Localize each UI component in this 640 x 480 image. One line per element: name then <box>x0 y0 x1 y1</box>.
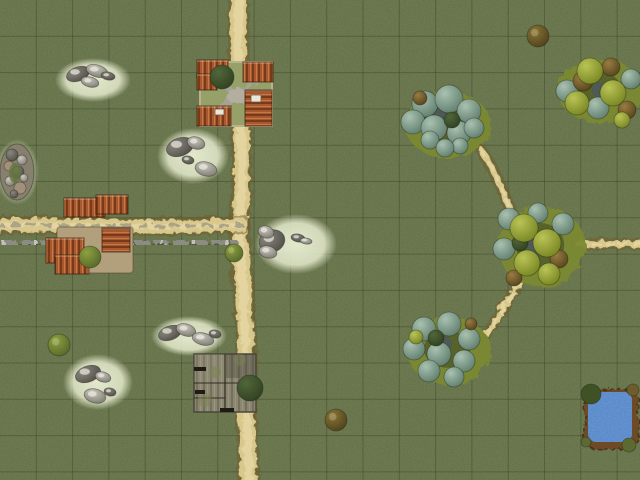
barn-building <box>194 354 263 412</box>
rock-patch-4 <box>151 316 227 356</box>
road-horizontal-left <box>0 223 240 224</box>
path-right-east <box>576 242 640 243</box>
battle-map[interactable] <box>0 0 640 480</box>
rock-patch-3 <box>255 214 337 274</box>
bush-west <box>48 334 70 356</box>
farm-compound <box>197 60 273 126</box>
battlemap-viewport <box>0 0 640 480</box>
bush-northeast <box>527 25 549 47</box>
bush-south <box>325 409 347 431</box>
rock-patch-1 <box>55 58 131 102</box>
bush-roadside <box>225 244 243 262</box>
rock-patch-2 <box>157 128 229 184</box>
pond <box>581 384 639 452</box>
rock-patch-5 <box>63 354 133 410</box>
